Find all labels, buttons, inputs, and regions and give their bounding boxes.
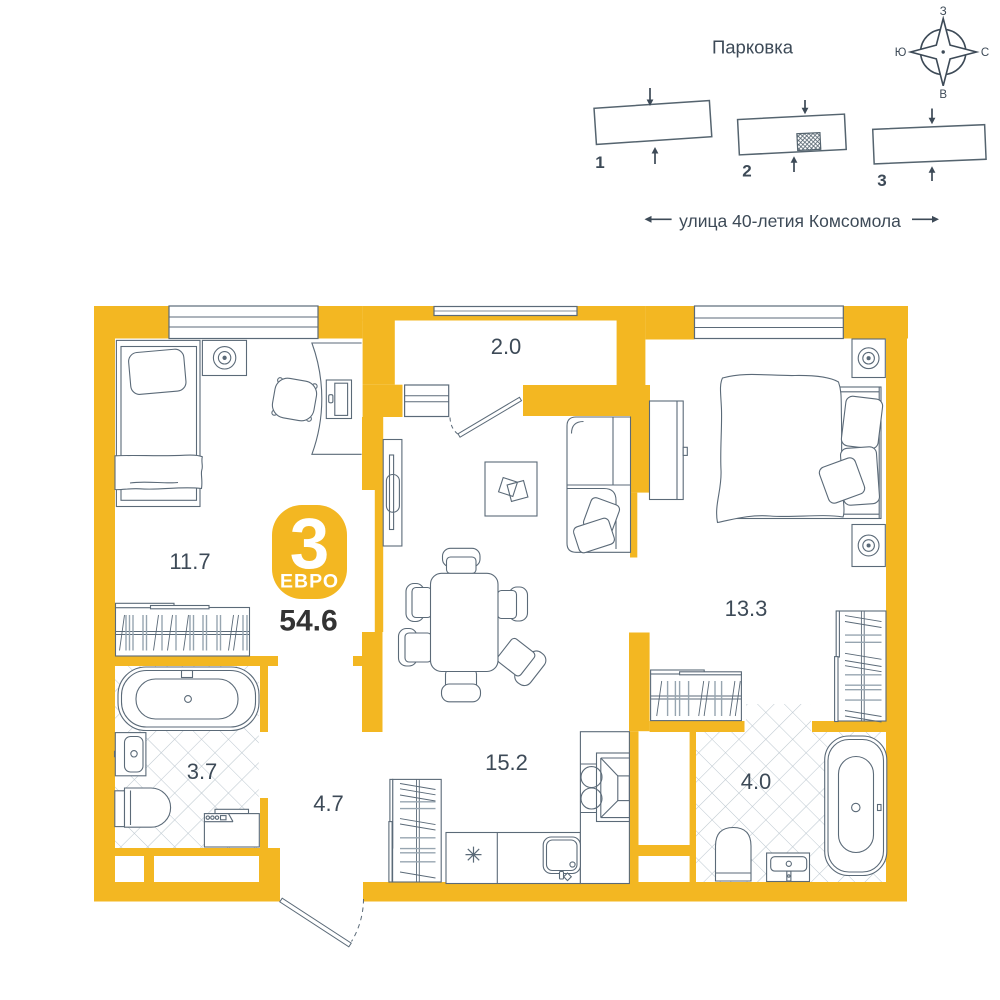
svg-text:ЕВРО: ЕВРО	[280, 571, 339, 593]
svg-text:Ю: Ю	[895, 47, 907, 59]
svg-text:В: В	[939, 89, 947, 101]
svg-text:3.7: 3.7	[187, 759, 218, 784]
svg-text:13.3: 13.3	[725, 596, 768, 621]
svg-text:2: 2	[742, 162, 751, 181]
svg-text:11.7: 11.7	[169, 549, 210, 574]
svg-text:Парковка: Парковка	[712, 37, 794, 58]
svg-text:4.7: 4.7	[313, 791, 344, 816]
svg-text:3: 3	[877, 171, 886, 190]
svg-text:З: З	[940, 6, 947, 18]
svg-text:4.0: 4.0	[741, 769, 772, 794]
svg-text:С: С	[981, 47, 989, 59]
svg-text:1: 1	[595, 153, 604, 172]
svg-text:54.6: 54.6	[279, 605, 337, 638]
svg-text:15.2: 15.2	[485, 750, 528, 775]
svg-text:улица 40-летия Комсомола: улица 40-летия Комсомола	[679, 211, 901, 231]
svg-text:2.0: 2.0	[491, 334, 522, 359]
